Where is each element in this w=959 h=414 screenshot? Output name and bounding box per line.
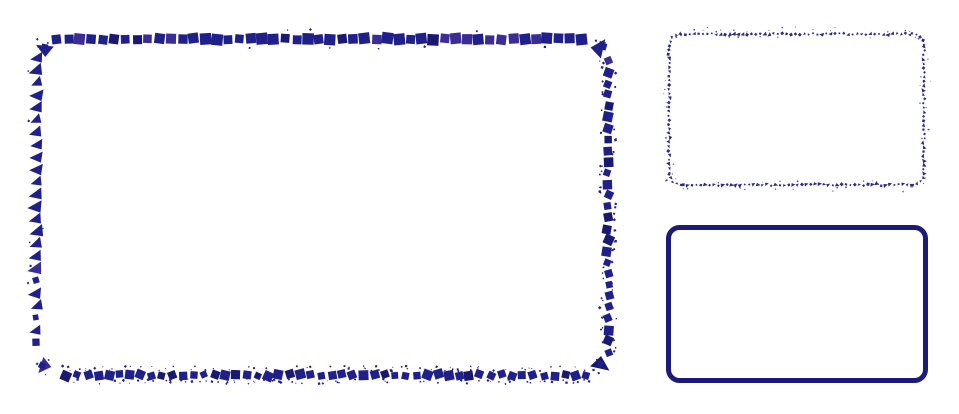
rounded-rectangle-icons xyxy=(0,0,959,414)
solid-rounded-rectangle-icon xyxy=(669,228,926,381)
mosaic-rounded-rectangle-icon xyxy=(27,28,617,385)
vector-illustration xyxy=(0,0,959,414)
speckle-rounded-rectangle-icon xyxy=(663,26,931,192)
